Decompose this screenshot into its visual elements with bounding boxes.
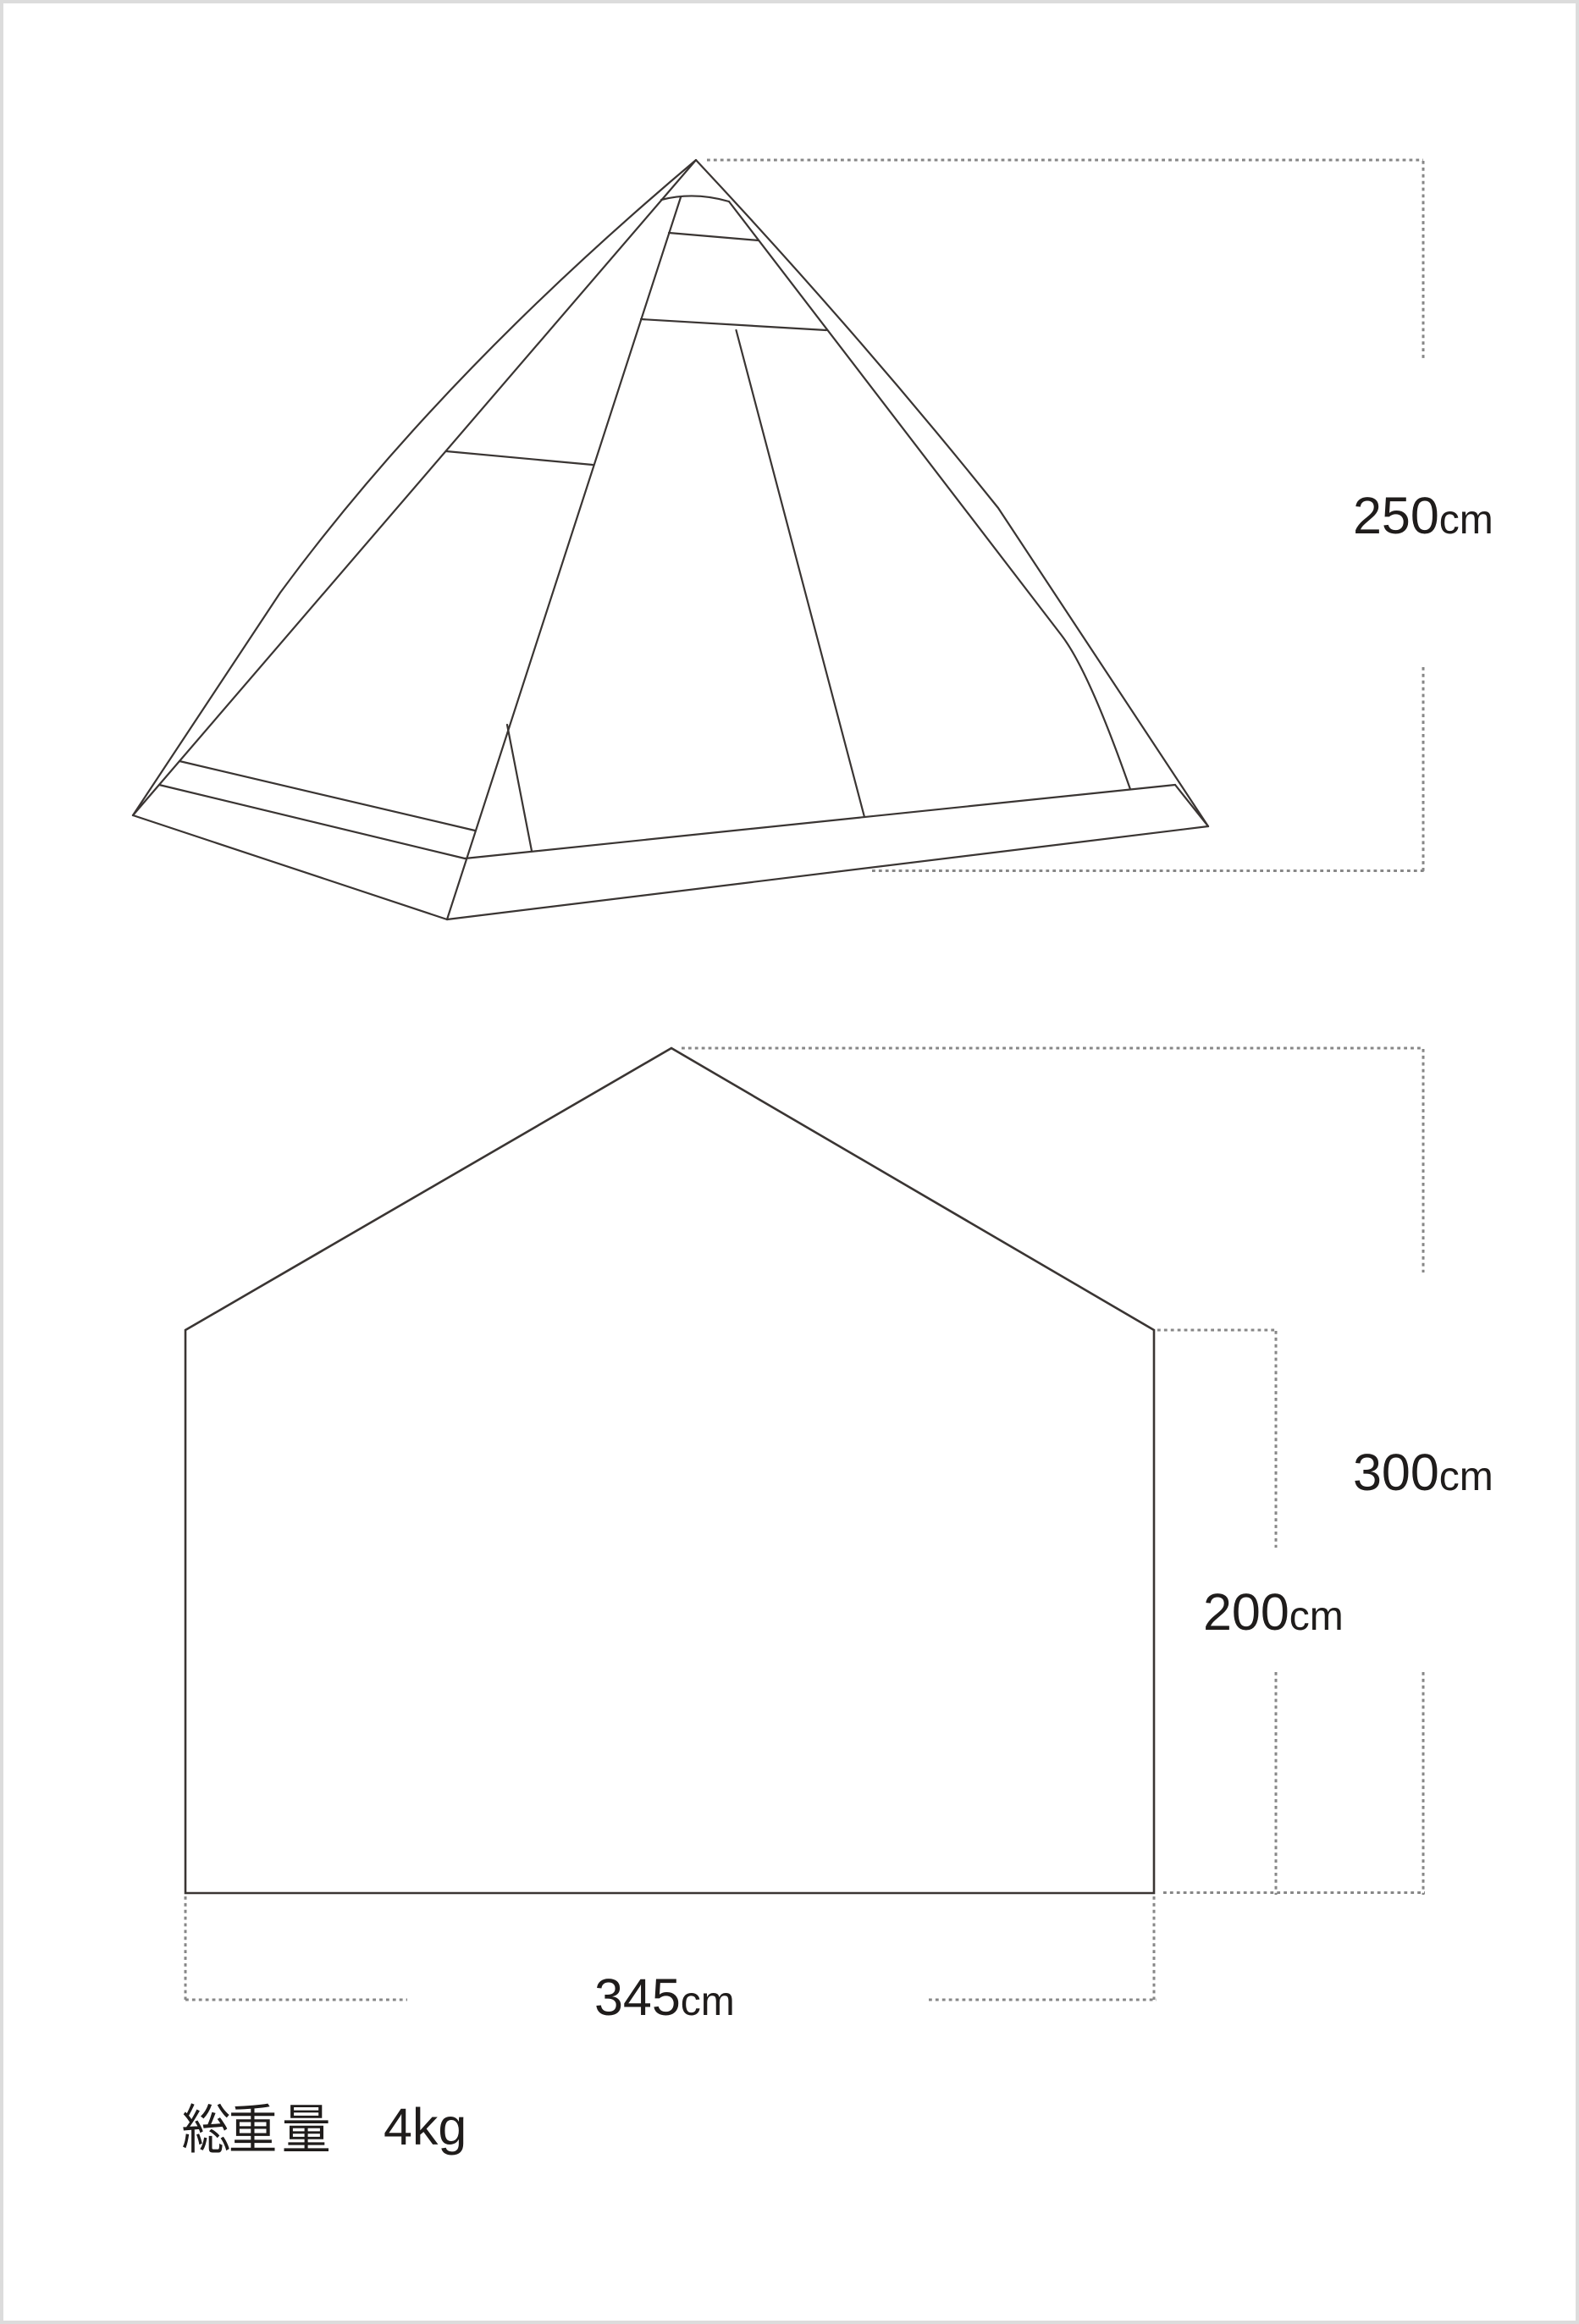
svg-text:300cm: 300cm <box>1353 1444 1493 1501</box>
svg-text:200cm: 200cm <box>1203 1583 1344 1641</box>
svg-text:4kg: 4kg <box>384 2098 467 2156</box>
svg-text:250cm: 250cm <box>1353 487 1493 544</box>
svg-text:345cm: 345cm <box>594 1968 735 2026</box>
